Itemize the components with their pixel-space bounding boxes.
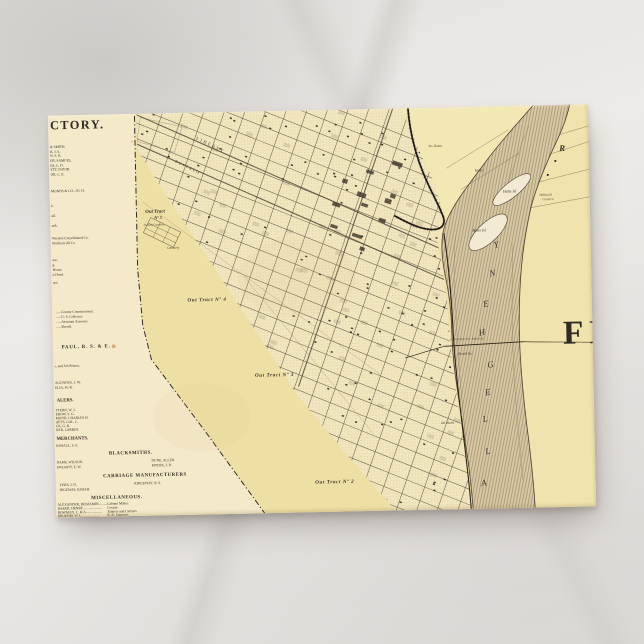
directory-line: & SMITH. xyxy=(50,145,66,149)
map-label: Out Tract Nº 4 xyxy=(187,297,226,304)
map-label: Epler xyxy=(474,167,484,172)
map-label: Holts Isl xyxy=(502,188,517,193)
directory-line: n Hotel. xyxy=(53,273,65,277)
directory-line: use. xyxy=(53,281,59,285)
directory-line: ank. xyxy=(52,224,58,228)
directory-title-partial: CTORY. xyxy=(50,117,105,132)
farmhouse-mark xyxy=(554,160,556,162)
marble-surface: Out TractNº 5Franklin CemeteryCemeteryOu… xyxy=(0,0,644,644)
map-label: Franklin Cemetery xyxy=(144,223,165,226)
map-label: Nº 5 xyxy=(153,215,163,220)
postcard: Out TractNº 5Franklin CemeteryCemeteryOu… xyxy=(48,104,596,517)
map-label: Oil Works xyxy=(441,421,455,425)
directory-line: ......Sheriff. xyxy=(56,325,72,329)
map-label: Out Tract Nº 2 xyxy=(315,479,354,486)
directory-line: ......County Commissioner. xyxy=(56,309,94,314)
map-label: Out Tract xyxy=(145,210,165,215)
map-label: Cemetery xyxy=(167,246,180,250)
map-label: Bissell Ro. xyxy=(458,352,472,356)
map-label: Jos. Hanks xyxy=(428,144,443,148)
directory-line: ......U. S. Collector. xyxy=(56,314,83,319)
directory-line: ail. xyxy=(51,214,56,218)
farmhouse-mark xyxy=(547,174,549,176)
directory-line: PAUL, R. S. & E. xyxy=(62,344,111,350)
map-label: Out Tract Nº 3 xyxy=(255,372,294,379)
map-label: R xyxy=(558,143,565,153)
directory-line: ......Assistant Assessor. xyxy=(56,319,88,324)
directory-line: MISCELLANEOUS. xyxy=(91,495,143,501)
map-label: Car & Co xyxy=(542,197,554,201)
directory-line: Western Consolidated Co. xyxy=(52,236,89,241)
map-engraving: Out TractNº 5Franklin CemeteryCemeteryOu… xyxy=(48,104,596,517)
directory-line: R. R. Engineer. xyxy=(107,513,129,517)
directory-line: MERCHANTS. xyxy=(57,436,89,442)
map-title-partial: FRANKLIN xyxy=(563,310,597,352)
directory-line: ALERS. xyxy=(57,398,74,403)
directory-line: BROEHM, W. L..................... xyxy=(58,513,100,517)
directory-line: k. xyxy=(51,204,54,208)
map-label: Bates Isl xyxy=(472,227,486,232)
directory-line: BLACKSMITHS. xyxy=(109,451,153,457)
directory-line: Northern Oil Co. xyxy=(52,241,76,246)
